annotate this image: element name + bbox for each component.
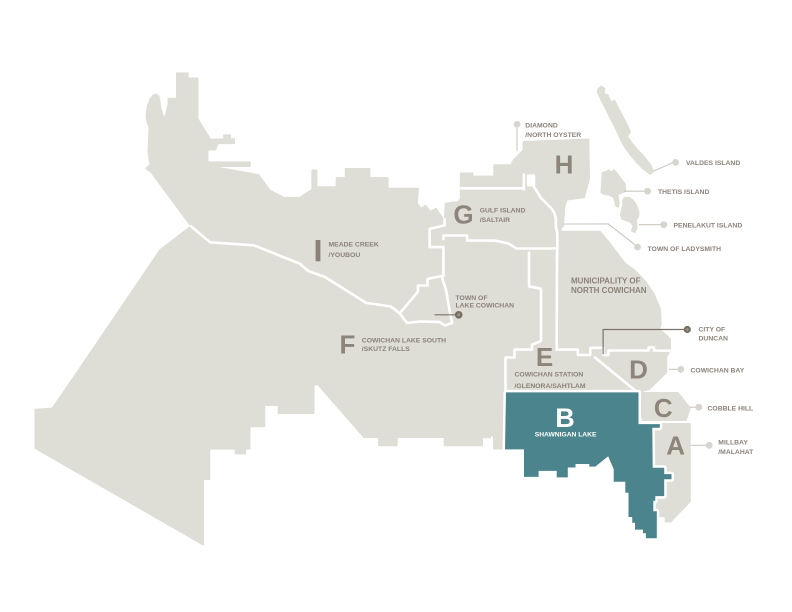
svg-text:C: C	[654, 393, 673, 423]
svg-text:D: D	[629, 355, 648, 385]
svg-text:E: E	[536, 342, 553, 372]
svg-text:NORTH COWICHAN: NORTH COWICHAN	[571, 286, 647, 295]
svg-text:MEADE CREEK: MEADE CREEK	[329, 242, 379, 249]
svg-text:/SKUTZ FALLS: /SKUTZ FALLS	[362, 346, 410, 353]
svg-text:MUNICIPALITY OF: MUNICIPALITY OF	[571, 276, 641, 285]
svg-text:MILLBAY: MILLBAY	[718, 440, 748, 447]
svg-text:GULF ISLAND: GULF ISLAND	[480, 207, 526, 214]
svg-text:B: B	[555, 403, 575, 433]
svg-text:PENELAKUT ISLAND: PENELAKUT ISLAND	[674, 223, 743, 230]
svg-text:F: F	[340, 330, 356, 360]
svg-text:H: H	[555, 150, 574, 180]
svg-text:DUNCAN: DUNCAN	[699, 336, 729, 343]
svg-text:DIAMOND: DIAMOND	[525, 122, 558, 129]
svg-text:/GLENORA/SAHTLAM: /GLENORA/SAHTLAM	[515, 383, 586, 390]
svg-text:COWICHAN STATION: COWICHAN STATION	[515, 372, 584, 379]
svg-text:TOWN OF: TOWN OF	[456, 295, 488, 302]
svg-text:/SALTAIR: /SALTAIR	[480, 217, 510, 224]
svg-text:SHAWNIGAN LAKE: SHAWNIGAN LAKE	[535, 432, 597, 439]
svg-text:THETIS ISLAND: THETIS ISLAND	[658, 189, 709, 196]
svg-text:COWICHAN BAY: COWICHAN BAY	[691, 368, 745, 375]
svg-text:/NORTH OYSTER: /NORTH OYSTER	[525, 132, 581, 139]
svg-text:LAKE COWICHAN: LAKE COWICHAN	[456, 303, 515, 310]
svg-text:TOWN OF LADYSMITH: TOWN OF LADYSMITH	[648, 246, 722, 253]
svg-text:/MALAHAT: /MALAHAT	[718, 449, 754, 456]
svg-text:A: A	[666, 431, 685, 461]
svg-text:CITY OF: CITY OF	[699, 327, 726, 334]
svg-text:COBBLE HILL: COBBLE HILL	[708, 406, 754, 413]
svg-text:VALDES ISLAND: VALDES ISLAND	[686, 160, 740, 167]
svg-text:COWICHAN LAKE SOUTH: COWICHAN LAKE SOUTH	[362, 338, 446, 345]
svg-text:/YOUBOU: /YOUBOU	[329, 252, 361, 259]
svg-text:G: G	[453, 200, 473, 230]
